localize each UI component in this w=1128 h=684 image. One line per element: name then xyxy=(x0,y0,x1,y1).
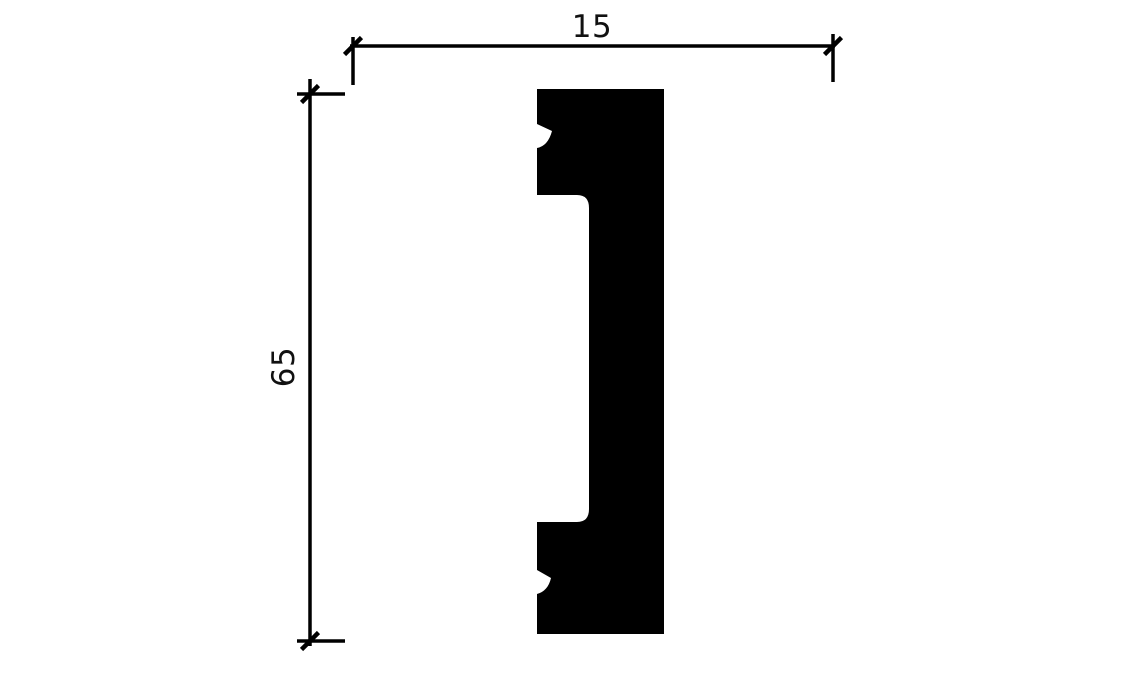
width-dimension-label: 15 xyxy=(572,9,612,45)
profile-shape xyxy=(537,89,664,634)
drawing-canvas: 15 65 xyxy=(0,0,1128,684)
height-dimension-label: 65 xyxy=(266,347,302,387)
height-dimension xyxy=(297,79,345,649)
technical-drawing-svg: 15 65 xyxy=(0,0,1128,684)
